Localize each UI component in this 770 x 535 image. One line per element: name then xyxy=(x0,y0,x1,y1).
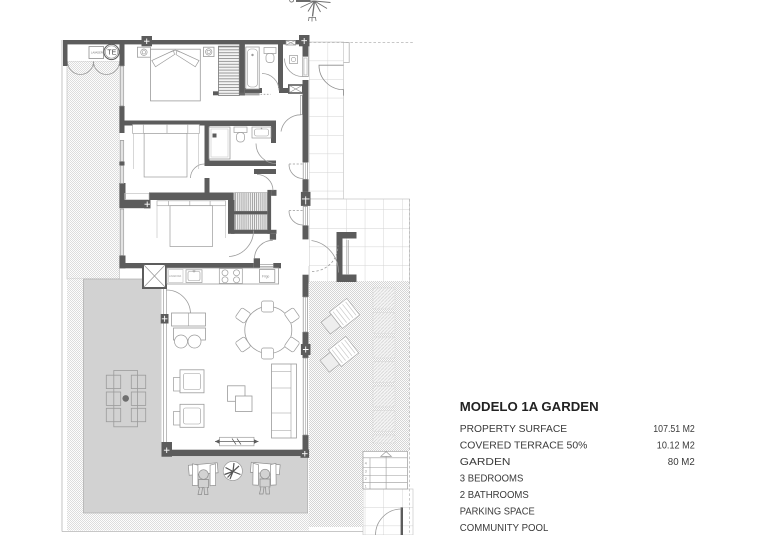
svg-text:LAVADORA: LAVADORA xyxy=(169,275,182,278)
svg-text:4: 4 xyxy=(365,462,367,466)
svg-text:GARDEN: GARDEN xyxy=(460,457,511,468)
svg-text:PARKING SPACE: PARKING SPACE xyxy=(460,507,535,518)
svg-text:PROPERTY SURFACE: PROPERTY SURFACE xyxy=(460,424,568,435)
svg-text:MODELO 1A GARDEN: MODELO 1A GARDEN xyxy=(460,399,599,414)
svg-text:1: 1 xyxy=(365,485,367,489)
svg-text:LAVADERO: LAVADERO xyxy=(91,51,105,55)
svg-text:Frigo: Frigo xyxy=(262,275,269,279)
svg-text:80 M2: 80 M2 xyxy=(668,457,695,468)
svg-text:107.51 M2: 107.51 M2 xyxy=(653,424,695,435)
svg-text:2 BATHROOMS: 2 BATHROOMS xyxy=(460,490,529,501)
svg-text:COVERED TERRACE 50%: COVERED TERRACE 50% xyxy=(460,441,588,452)
svg-text:COMMUNITY POOL: COMMUNITY POOL xyxy=(460,523,549,534)
svg-text:2: 2 xyxy=(365,477,367,481)
svg-text:10.12 M2: 10.12 M2 xyxy=(657,441,695,452)
svg-text:TE: TE xyxy=(107,50,116,57)
svg-text:3 BEDROOMS: 3 BEDROOMS xyxy=(460,474,524,485)
svg-text:3: 3 xyxy=(365,470,367,474)
